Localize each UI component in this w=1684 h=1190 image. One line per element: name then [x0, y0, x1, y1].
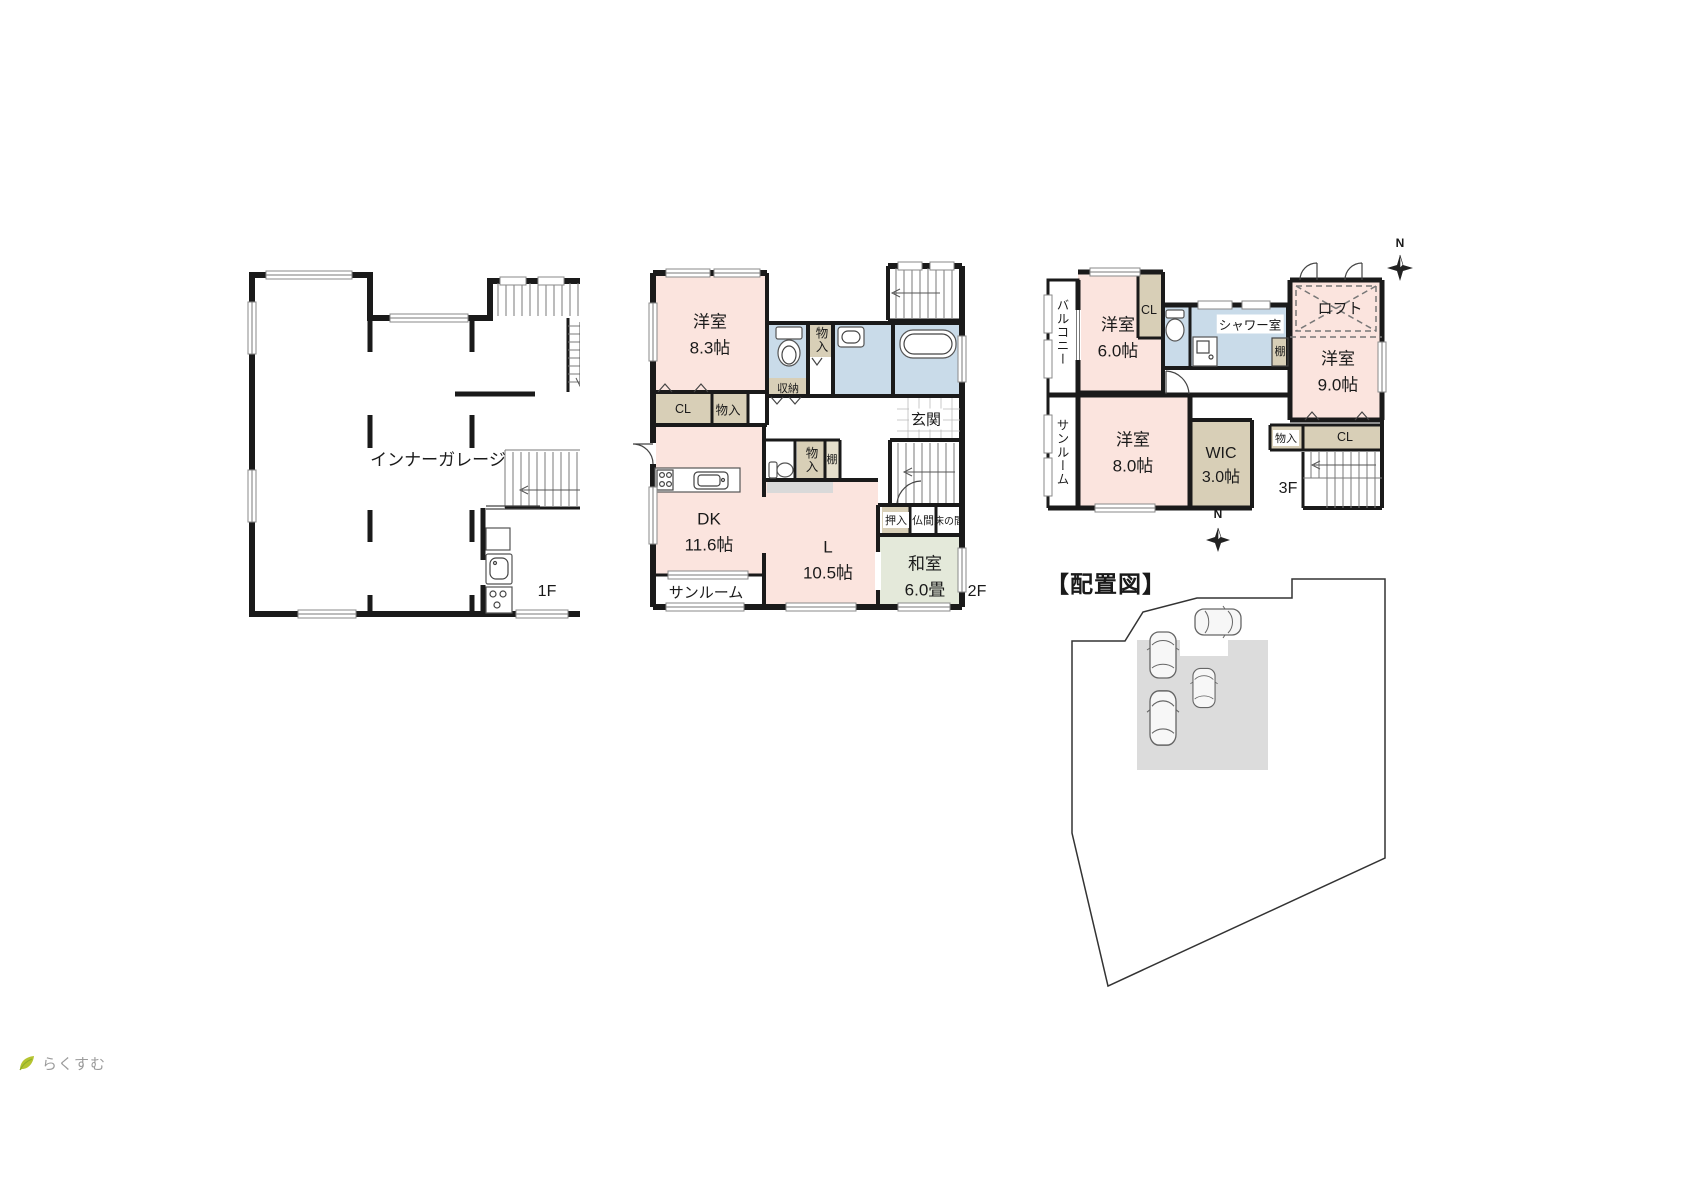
room-size: 9.0帖	[1318, 372, 1359, 398]
kitchenette	[486, 528, 512, 613]
dk-door-arc	[633, 443, 656, 464]
room-name: DK	[685, 507, 734, 533]
toilet-small-icon	[769, 462, 793, 478]
oshiire-label: 押入	[883, 512, 909, 528]
room-label-west-8-3: 洋室 8.3帖	[690, 310, 731, 361]
tokonoma-label: 床の間	[934, 513, 964, 528]
room-label-west-6: 洋室 6.0帖	[1098, 313, 1139, 364]
room-size: 11.6帖	[685, 532, 734, 558]
room-label-living: L 10.5帖	[803, 535, 853, 586]
brand-logo: らくすむ	[16, 1052, 106, 1074]
ldk-opening	[760, 497, 768, 553]
stairs-up	[892, 268, 952, 318]
stove-icon	[486, 587, 512, 613]
room-name: 洋室	[690, 310, 731, 336]
room-label-west-9: 洋室 9.0帖	[1318, 347, 1359, 398]
closet-label-a: CL	[1141, 303, 1157, 317]
shuno-label: 収納	[777, 380, 799, 396]
leaf-icon	[16, 1052, 38, 1074]
sunroom-label: サンルーム	[669, 582, 744, 603]
shelf-label-3f: 棚	[1275, 343, 1286, 359]
floor3-label: 3F	[1279, 480, 1298, 498]
windows	[248, 271, 580, 618]
butsuma-label: 仏間	[912, 512, 934, 528]
outer-wall	[252, 275, 580, 614]
stairs-upper	[498, 283, 580, 392]
compass-icon	[1206, 528, 1230, 552]
loft-door-arcs	[1300, 263, 1362, 280]
bathtub-icon	[900, 330, 956, 358]
loft-label: ロフト	[1317, 298, 1362, 319]
toilet-icon	[1166, 310, 1184, 341]
balcony-door	[1075, 310, 1081, 360]
room-name: 洋室	[1098, 313, 1139, 339]
compass-icon	[1387, 255, 1413, 281]
room-name: 洋室	[1113, 428, 1154, 454]
closet-label: CL	[675, 402, 691, 416]
room-name: 洋室	[1318, 347, 1359, 373]
balcony-label: バルコニー	[1053, 298, 1072, 366]
storage-label-b: 物入	[802, 447, 821, 474]
storage-label-3f: 物入	[1273, 430, 1299, 446]
room-size: 8.0帖	[1113, 453, 1154, 479]
site-plan-title: 【配置図】	[1046, 565, 1166, 599]
floor2-label: 2F	[968, 583, 987, 601]
floor1-label: 1F	[538, 583, 557, 601]
hall-door-arc	[1166, 371, 1189, 394]
sink-icon	[838, 327, 864, 347]
room-label-wic: WIC 3.0帖	[1202, 442, 1240, 490]
floorplan-page: インナーガレージ 1F 洋室 8.3帖 CL 物入 収納 物入 玄関 物入 棚 …	[0, 0, 1684, 1190]
compass-n-label-3f: N	[1396, 236, 1405, 250]
compass-n-label-site: N	[1214, 507, 1223, 521]
shelf-label: 棚	[827, 451, 838, 467]
storage-hall-label: 物入	[812, 327, 831, 354]
room-size: 6.0畳	[905, 577, 946, 603]
toilet-icon	[776, 327, 802, 366]
kitchen-counter	[655, 468, 740, 492]
storage-label-a: 物入	[715, 400, 740, 419]
room-size: 6.0帖	[1098, 338, 1139, 364]
room-label-west-8: 洋室 8.0帖	[1113, 428, 1154, 479]
room-size: 3.0帖	[1202, 466, 1240, 490]
room-name: L	[803, 535, 853, 561]
room-name: 和室	[905, 552, 946, 578]
floor1-plan	[230, 250, 580, 625]
genkan-label: 玄関	[909, 409, 943, 430]
shower-icon	[1193, 337, 1217, 366]
room-label-washitsu: 和室 6.0畳	[905, 552, 946, 603]
sunroom-label-3f: サンルーム	[1053, 418, 1072, 486]
closet-label-b: CL	[1337, 430, 1353, 444]
garage-label: インナーガレージ	[370, 446, 506, 471]
room-label-dk: DK 11.6帖	[685, 507, 734, 558]
room-name: WIC	[1202, 442, 1240, 466]
shower-room-label: シャワー室	[1217, 315, 1284, 334]
room-size: 8.3帖	[690, 335, 731, 361]
room-size: 10.5帖	[803, 560, 853, 586]
washitsu-door-gap	[875, 552, 881, 590]
stairs-genkan	[897, 443, 955, 503]
brand-name: らくすむ	[42, 1053, 106, 1074]
